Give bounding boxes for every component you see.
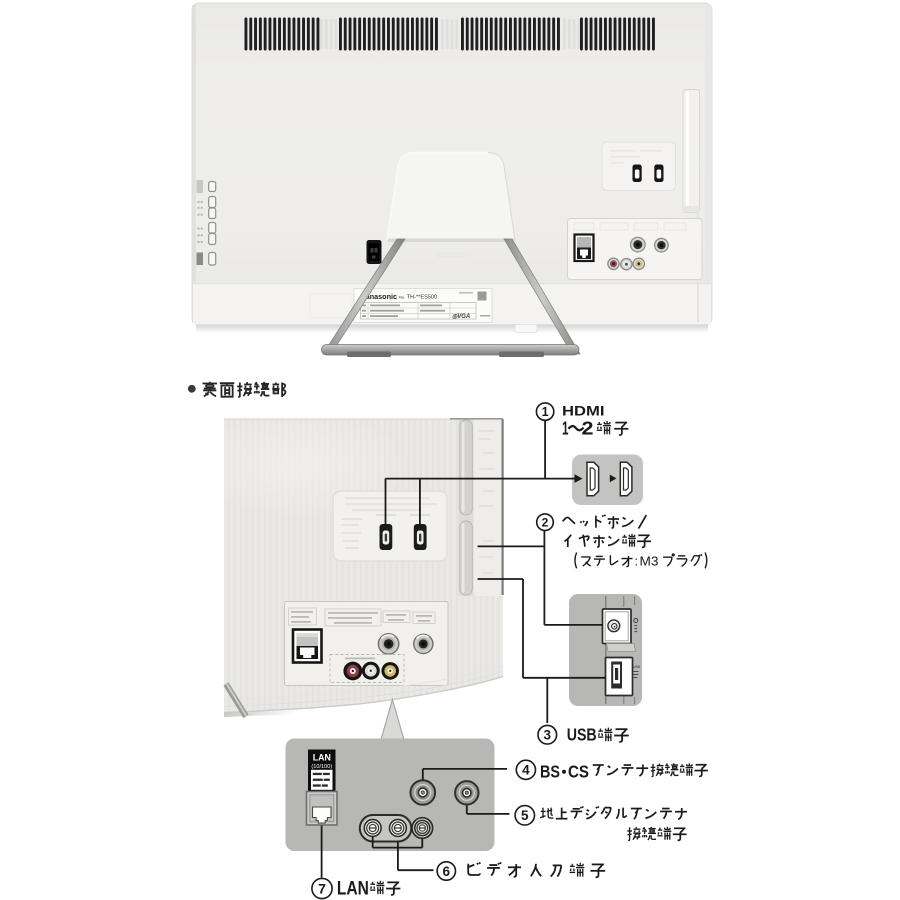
svg-text:4: 4: [522, 763, 530, 778]
svg-text:5: 5: [521, 808, 529, 823]
svg-text:1: 1: [542, 405, 549, 419]
svg-text:1: 1: [562, 418, 569, 439]
svg-text:6: 6: [443, 864, 451, 879]
svg-text:USB: USB: [567, 725, 597, 745]
svg-text::: :: [635, 555, 638, 569]
svg-text:2: 2: [582, 418, 594, 439]
svg-text:USB: USB: [633, 665, 640, 669]
svg-text:7: 7: [318, 881, 326, 897]
svg-text:BS: BS: [540, 761, 560, 781]
svg-text:HDMI: HDMI: [562, 403, 605, 418]
svg-text:No. TH-**ES500: No. TH-**ES500: [399, 295, 437, 301]
svg-text:(10/100): (10/100): [311, 764, 332, 770]
svg-text:3: 3: [544, 728, 552, 743]
svg-text:2: 2: [542, 516, 549, 530]
svg-text:CS: CS: [568, 761, 589, 781]
svg-text:◎VGA: ◎VGA: [452, 314, 470, 320]
svg-text:M3: M3: [640, 555, 659, 569]
svg-text:LAN: LAN: [337, 879, 369, 900]
svg-text:LAN: LAN: [313, 753, 331, 763]
